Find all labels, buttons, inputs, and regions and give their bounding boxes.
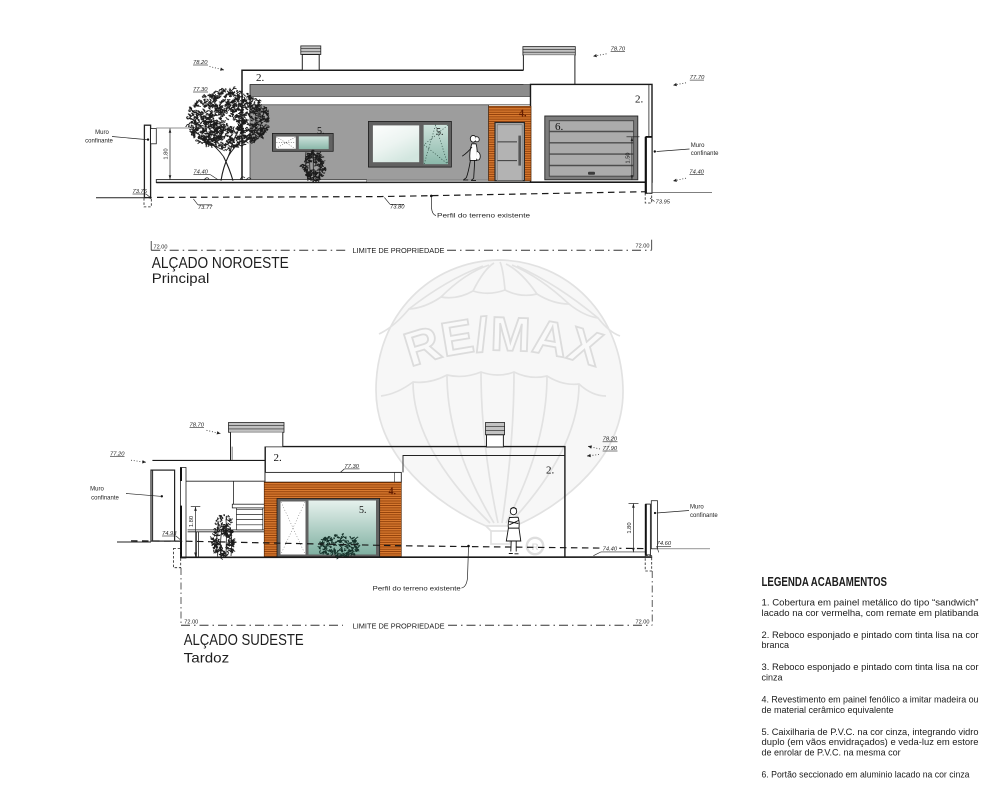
svg-text:5. Caixilharia de P.V.C. na co: 5. Caixilharia de P.V.C. na cor cinza, i… [762, 727, 979, 737]
svg-text:branca: branca [762, 640, 790, 650]
svg-text:LEGENDA ACABAMENTOS: LEGENDA ACABAMENTOS [762, 574, 888, 589]
svg-text:cinza: cinza [762, 673, 783, 683]
svg-text:3.: 3. [256, 109, 264, 120]
svg-text:duplo (em vãos envidraçados) e: duplo (em vãos envidraçados) e veda-luz … [762, 737, 979, 747]
svg-text:4. Revestimento em painel fenó: 4. Revestimento em painel fenólico a imi… [762, 695, 979, 705]
svg-text:1. Cobertura em painel metálic: 1. Cobertura em painel metálico do tipo … [762, 598, 979, 608]
svg-text:2.: 2. [546, 465, 555, 477]
svg-text:Principal: Principal [152, 270, 210, 286]
svg-text:1.80: 1.80 [163, 148, 169, 159]
svg-text:2. Reboco esponjado e pintado: 2. Reboco esponjado e pintado com tinta … [762, 630, 979, 640]
svg-text:3. Reboco esponjado e pintado: 3. Reboco esponjado e pintado com tinta … [762, 662, 979, 672]
svg-text:4.: 4. [519, 108, 527, 119]
svg-text:LIMITE DE PROPRIEDADE: LIMITE DE PROPRIEDADE [353, 246, 445, 255]
svg-text:2.: 2. [274, 452, 283, 464]
svg-text:2.: 2. [635, 94, 644, 106]
svg-text:confinante: confinante [85, 139, 113, 145]
svg-text:Perfil do terreno existente: Perfil do terreno existente [437, 213, 530, 220]
svg-text:72.00: 72.00 [184, 619, 198, 625]
svg-text:74.40: 74.40 [603, 546, 618, 552]
svg-text:72.00: 72.00 [154, 244, 168, 250]
svg-text:Muro: Muro [690, 505, 704, 511]
svg-text:73.77: 73.77 [198, 205, 213, 211]
svg-text:4.: 4. [389, 487, 397, 498]
svg-text:5.: 5. [317, 126, 325, 137]
svg-text:73.95: 73.95 [656, 200, 671, 206]
svg-text:Muro: Muro [95, 130, 109, 136]
svg-text:de material cerâmico equivalen: de material cerâmico equivalente [762, 705, 894, 715]
svg-text:1.80: 1.80 [189, 516, 195, 527]
svg-text:ALÇADO SUDESTE: ALÇADO SUDESTE [184, 632, 304, 649]
svg-text:5.: 5. [436, 127, 444, 138]
svg-text:de enrolar de P.V.C. na mesma: de enrolar de P.V.C. na mesma cor [762, 748, 901, 758]
svg-text:confinante: confinante [690, 513, 718, 519]
svg-text:LIMITE DE PROPRIEDADE: LIMITE DE PROPRIEDADE [353, 622, 445, 631]
svg-text:lacado na cor vermelha, com re: lacado na cor vermelha, com remate em pl… [762, 608, 979, 618]
svg-text:2.: 2. [256, 72, 265, 84]
svg-text:5.: 5. [359, 505, 367, 516]
svg-text:72.00: 72.00 [636, 619, 650, 625]
svg-text:Muro: Muro [691, 143, 705, 149]
svg-text:6. Portão seccionado em alumin: 6. Portão seccionado em aluminio lacado … [762, 770, 970, 780]
svg-text:Perfil do terreno existente: Perfil do terreno existente [373, 586, 461, 593]
svg-text:1.80: 1.80 [627, 522, 633, 533]
svg-text:73.80: 73.80 [390, 205, 405, 211]
svg-text:6.: 6. [555, 121, 564, 133]
svg-text:1.50: 1.50 [626, 153, 632, 164]
svg-text:confinante: confinante [691, 151, 719, 157]
svg-text:Muro: Muro [90, 487, 104, 493]
svg-text:confinante: confinante [91, 496, 119, 502]
svg-text:Tardoz: Tardoz [184, 649, 230, 665]
svg-text:72.00: 72.00 [636, 243, 650, 249]
